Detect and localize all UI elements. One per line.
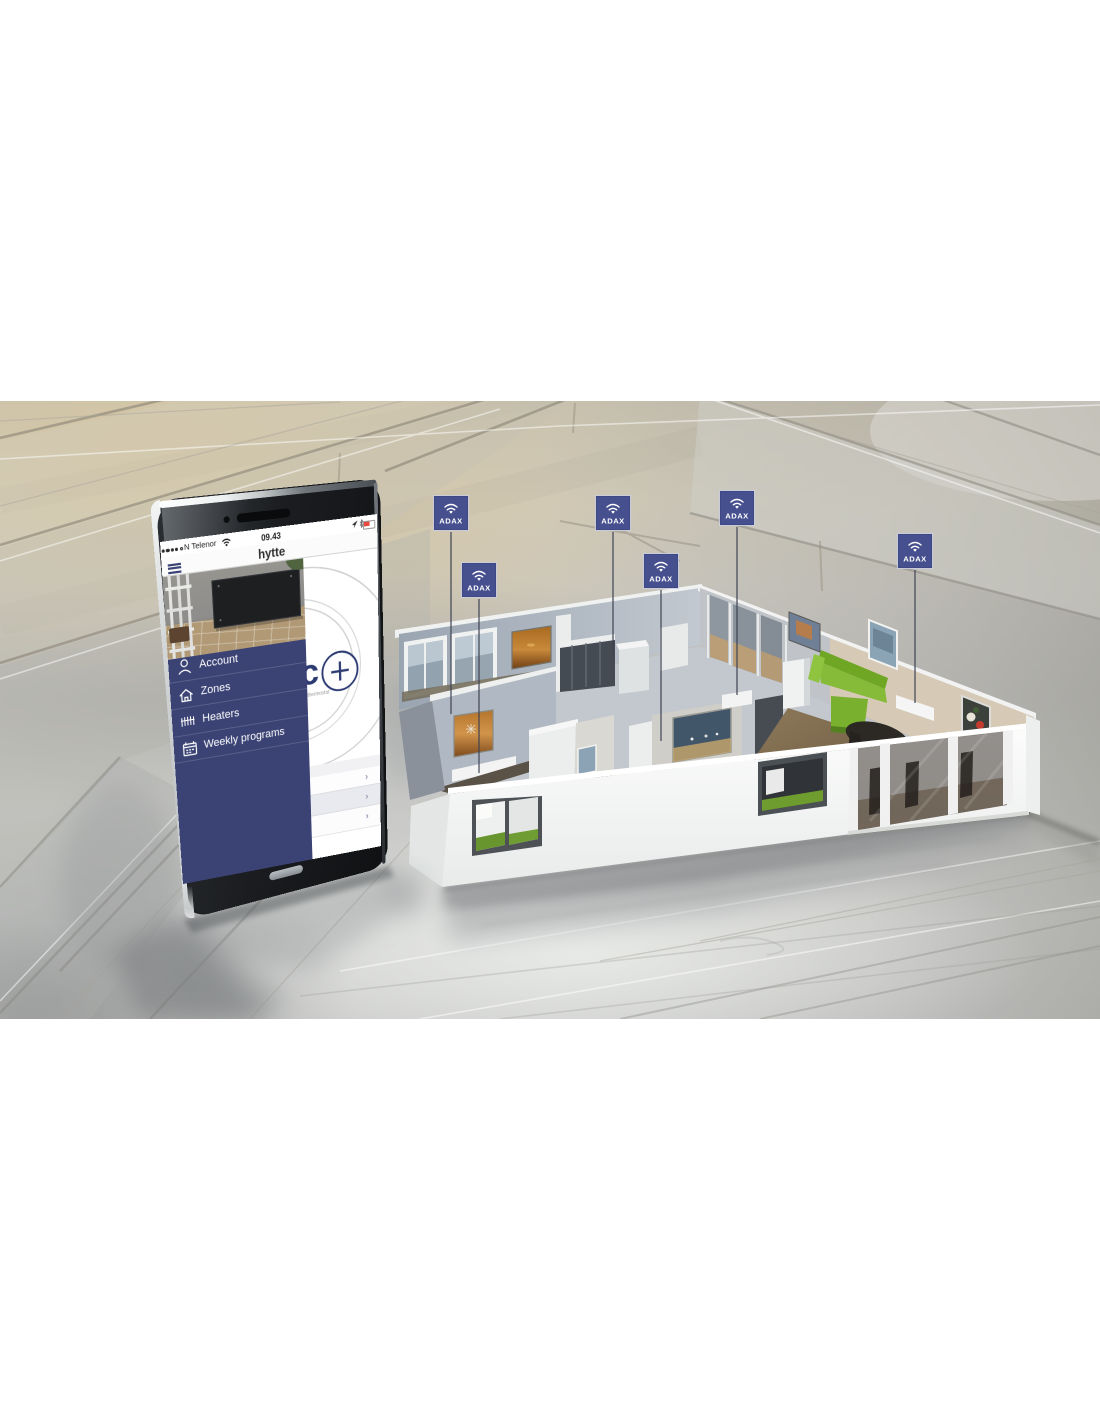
svg-text:ADAX: ADAX [439,517,463,526]
svg-text:ADAX: ADAX [467,584,491,593]
svg-text:ADAX: ADAX [649,575,673,584]
svg-text:ADAX: ADAX [725,512,749,521]
svg-text:ADAX: ADAX [903,555,927,564]
svg-text:ADAX: ADAX [601,517,625,526]
